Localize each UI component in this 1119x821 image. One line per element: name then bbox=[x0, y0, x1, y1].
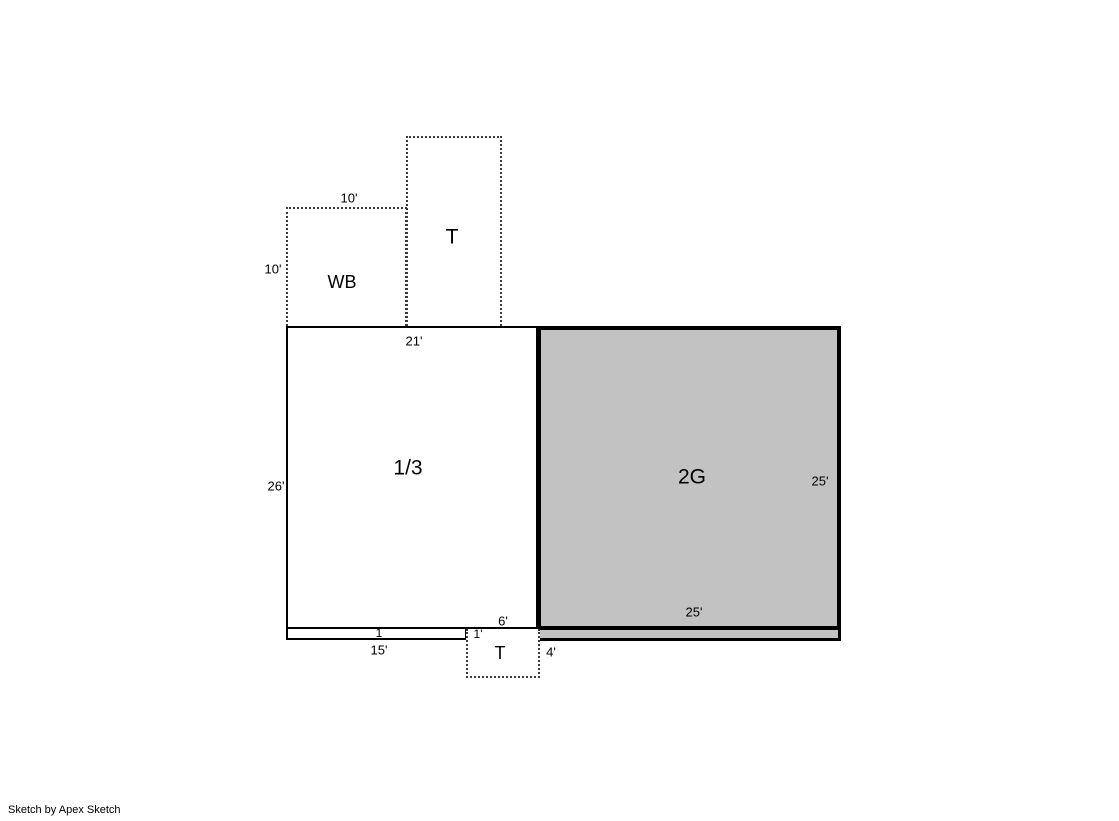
sketch-canvas: T WB 1/3 2G 1 T 10' 10' 21' 26' 25' 25' … bbox=[0, 0, 1119, 821]
dim-t-bottom-height: 4' bbox=[546, 646, 556, 659]
porch-t-top-label: T bbox=[446, 227, 459, 248]
garage-2g-label: 2G bbox=[678, 467, 706, 488]
one-foot-strip-label: 1 bbox=[376, 627, 383, 639]
dim-t-bottom-width: 6' bbox=[498, 615, 508, 628]
dim-main-width: 21' bbox=[406, 335, 423, 348]
dim-garage-bottom: 25' bbox=[686, 606, 703, 619]
dim-main-height: 26' bbox=[268, 480, 285, 493]
dim-garage-right: 25' bbox=[812, 475, 829, 488]
deck-wb-outline bbox=[286, 207, 407, 326]
dim-strip-height: 1' bbox=[474, 628, 483, 640]
deck-wb-label: WB bbox=[328, 273, 357, 291]
dim-wb-height: 10' bbox=[265, 263, 282, 276]
sketch-credit: Sketch by Apex Sketch bbox=[8, 804, 121, 816]
main-area-label: 1/3 bbox=[393, 458, 422, 479]
porch-t-bottom-label: T bbox=[495, 644, 506, 662]
dim-strip-width: 15' bbox=[371, 644, 388, 657]
dim-wb-width: 10' bbox=[341, 192, 358, 205]
garage-bottom-strip bbox=[537, 630, 841, 641]
